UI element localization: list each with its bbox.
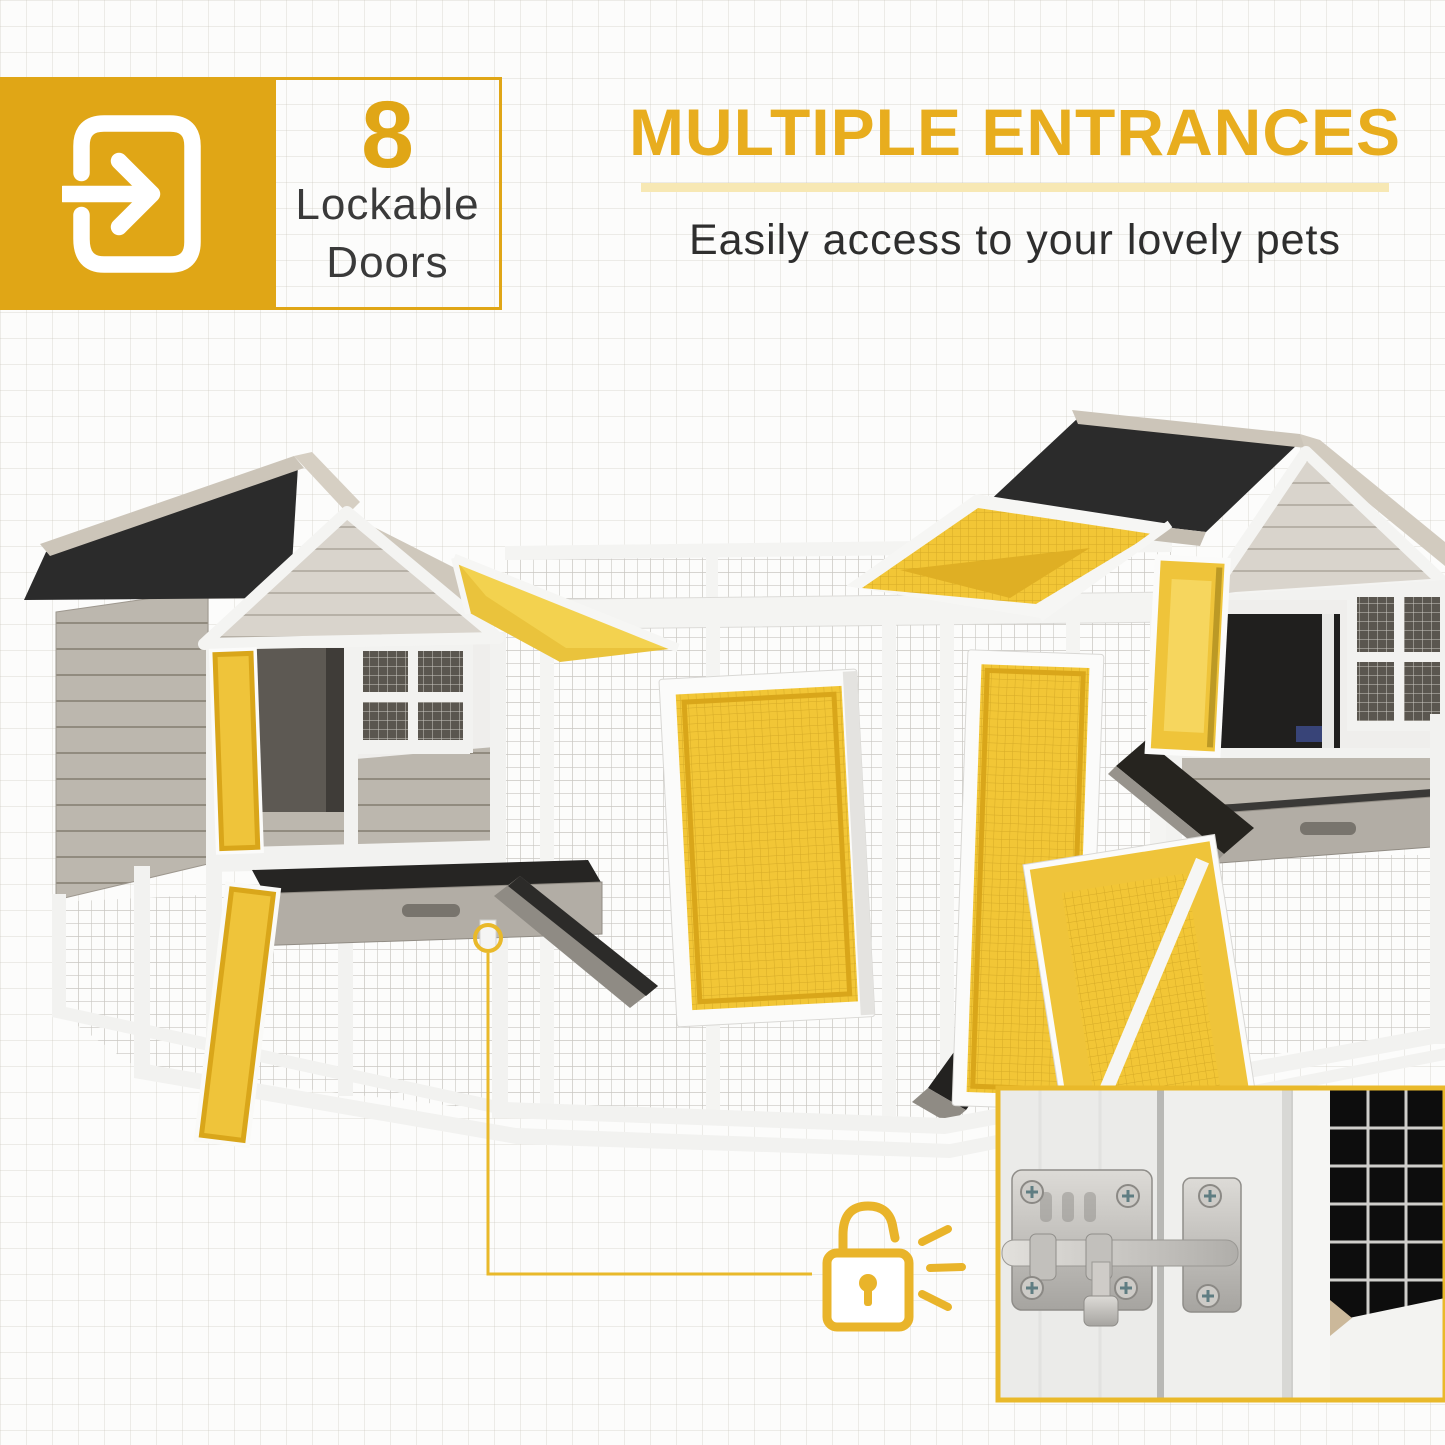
badge-label-line1: Lockable [295, 176, 479, 234]
page-title: MULTIPLE ENTRANCES [585, 98, 1445, 167]
left-hutch-roof-black [24, 466, 298, 600]
padlock-icon [827, 1206, 909, 1327]
product-illustration [0, 380, 1445, 1445]
latch-inset-photo [998, 1088, 1445, 1400]
emphasis-dashes [922, 1229, 962, 1307]
feature-badge: 8 Lockable Doors [0, 77, 502, 310]
inset-barrel-bolt-latch [1002, 1170, 1241, 1326]
badge-count: 8 [361, 95, 414, 176]
badge-text-box: 8 Lockable Doors [273, 77, 502, 310]
left-hutch-side-wall [56, 590, 208, 900]
left-hutch [24, 452, 530, 900]
door-enter-icon [62, 108, 212, 280]
page-subtitle: Easily access to your lovely pets [585, 216, 1445, 265]
latch-location-marker [475, 925, 501, 951]
marketing-image: { "badge": { "icon": "door-enter-icon", … [0, 0, 1445, 1445]
title-divider [641, 183, 1389, 192]
highlight-door-front-left [209, 647, 264, 855]
highlight-door-right-side [1145, 554, 1231, 758]
heading-block: MULTIPLE ENTRANCES Easily access to your… [585, 98, 1445, 265]
badge-label: Lockable Doors [295, 176, 479, 292]
inset-wire-mesh [1330, 1090, 1445, 1398]
highlight-door-center [659, 669, 875, 1027]
badge-label-line2: Doors [295, 234, 479, 292]
badge-icon-box [0, 77, 273, 310]
